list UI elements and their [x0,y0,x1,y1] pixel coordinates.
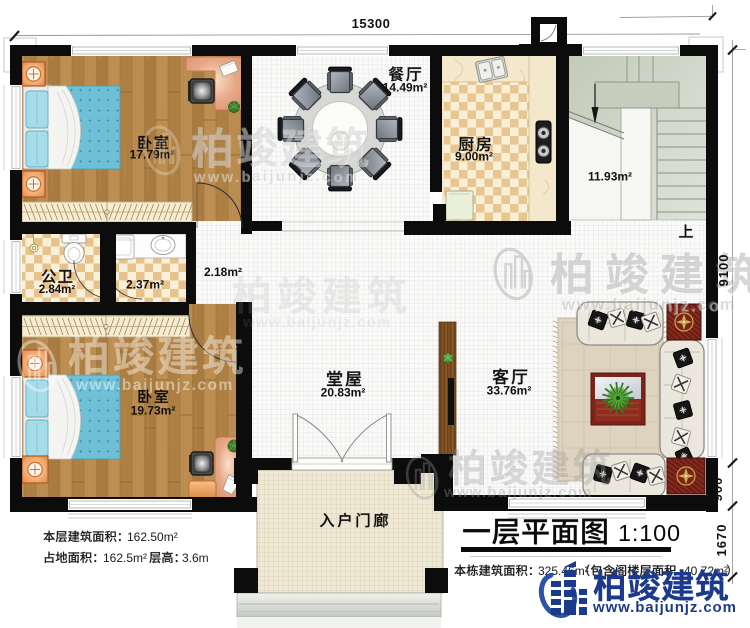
svg-text:1:100: 1:100 [618,520,681,546]
svg-text:20.83m²: 20.83m² [321,386,366,400]
svg-text:www.baijunjz.com: www.baijunjz.com [242,314,392,331]
svg-text:162.5m²: 162.5m² [103,551,147,565]
svg-text:www.baijunjz.com: www.baijunjz.com [592,599,737,616]
svg-text:www.baijunjz.com: www.baijunjz.com [561,296,736,314]
svg-text:900: 900 [710,477,725,502]
svg-text:19.73m²: 19.73m² [131,404,176,418]
svg-text:www.baijunjz.com: www.baijunjz.com [75,377,234,394]
svg-text:17.79m²: 17.79m² [130,148,175,162]
svg-text:11.93m²: 11.93m² [588,170,632,184]
svg-text:14.49m²: 14.49m² [383,81,428,95]
svg-text:15300: 15300 [352,16,391,31]
svg-text:9100: 9100 [716,254,731,287]
svg-text:9.00m²: 9.00m² [455,150,493,164]
svg-text:www.baijunjz.com: www.baijunjz.com [443,484,593,501]
svg-text:2.18m²: 2.18m² [204,265,242,279]
svg-text:162.50m²: 162.50m² [127,530,178,544]
svg-text:2.84m²: 2.84m² [39,284,76,296]
svg-text:1670: 1670 [714,524,729,557]
svg-text:www.baijunjz.com: www.baijunjz.com [192,169,360,185]
svg-text:33.76m²: 33.76m² [487,384,532,398]
svg-text:3.6m: 3.6m [182,551,209,565]
svg-text:2.37m²: 2.37m² [126,278,164,292]
